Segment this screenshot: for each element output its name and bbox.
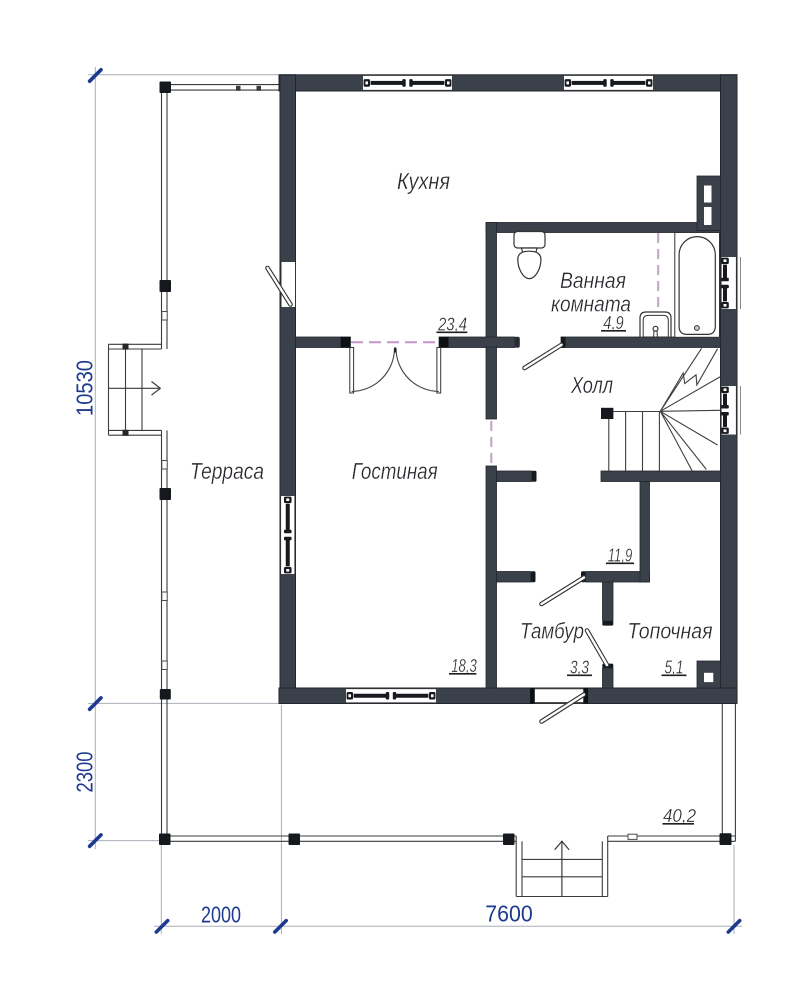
svg-text:4,9: 4,9 bbox=[603, 312, 624, 333]
svg-text:Терраса: Терраса bbox=[190, 458, 264, 484]
svg-text:Гостиная: Гостиная bbox=[352, 458, 438, 484]
svg-text:3,3: 3,3 bbox=[570, 656, 590, 677]
svg-text:5,1: 5,1 bbox=[665, 656, 684, 677]
svg-text:Кухня: Кухня bbox=[397, 168, 450, 194]
svg-text:23,4: 23,4 bbox=[437, 314, 467, 335]
svg-text:2000: 2000 bbox=[201, 902, 241, 928]
svg-text:Ванная: Ванная bbox=[560, 268, 626, 293]
svg-text:Топочная: Топочная bbox=[628, 618, 713, 643]
svg-text:18,3: 18,3 bbox=[451, 655, 477, 676]
svg-text:7600: 7600 bbox=[485, 901, 533, 927]
svg-text:Холл: Холл bbox=[570, 372, 613, 398]
svg-text:2300: 2300 bbox=[72, 752, 98, 793]
svg-text:Тамбур: Тамбур bbox=[520, 618, 584, 643]
svg-text:10530: 10530 bbox=[72, 360, 98, 416]
svg-text:40,2: 40,2 bbox=[663, 805, 697, 826]
svg-text:11,9: 11,9 bbox=[608, 545, 633, 566]
